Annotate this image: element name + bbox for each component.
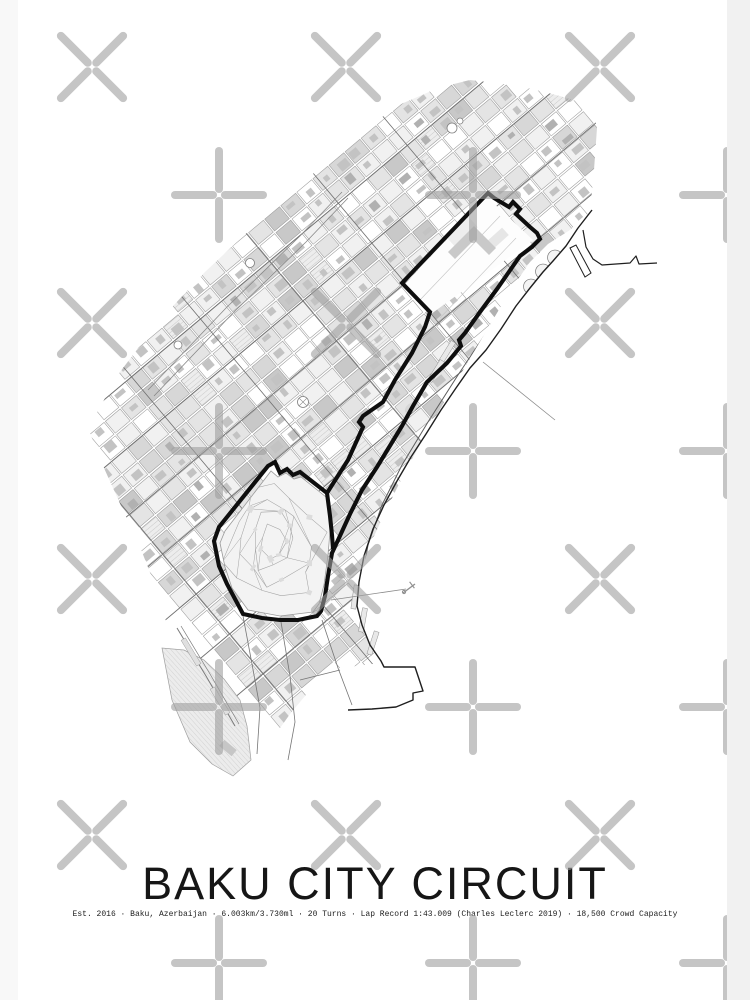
watermark-overlay	[0, 0, 750, 1000]
watermark-plus-icon	[175, 919, 263, 1000]
watermark-plus-icon	[175, 407, 263, 495]
watermark-plus-icon	[683, 151, 750, 239]
watermark-x-icon	[61, 36, 123, 98]
watermark-x-icon	[569, 292, 631, 354]
watermark-plus-icon	[429, 407, 517, 495]
watermark-plus-icon	[175, 663, 263, 751]
watermark-x-icon	[315, 292, 377, 354]
watermark-x-icon	[569, 548, 631, 610]
product-preview-page: BAKU CITY CIRCUIT Est. 2016 · Baku, Azer…	[0, 0, 750, 1000]
watermark-plus-icon	[429, 151, 517, 239]
watermark-x-icon	[315, 548, 377, 610]
watermark-x-icon	[569, 36, 631, 98]
watermark-x-icon	[315, 36, 377, 98]
watermark-plus-icon	[683, 919, 750, 1000]
watermark-plus-icon	[429, 919, 517, 1000]
watermark-x-icon	[61, 804, 123, 866]
watermark-x-icon	[61, 548, 123, 610]
watermark-plus-icon	[175, 151, 263, 239]
watermark-plus-icon	[683, 663, 750, 751]
watermark-x-icon	[569, 804, 631, 866]
watermark-x-icon	[61, 292, 123, 354]
watermark-marks	[61, 36, 750, 1000]
watermark-x-icon	[315, 804, 377, 866]
watermark-plus-icon	[429, 663, 517, 751]
watermark-plus-icon	[683, 407, 750, 495]
